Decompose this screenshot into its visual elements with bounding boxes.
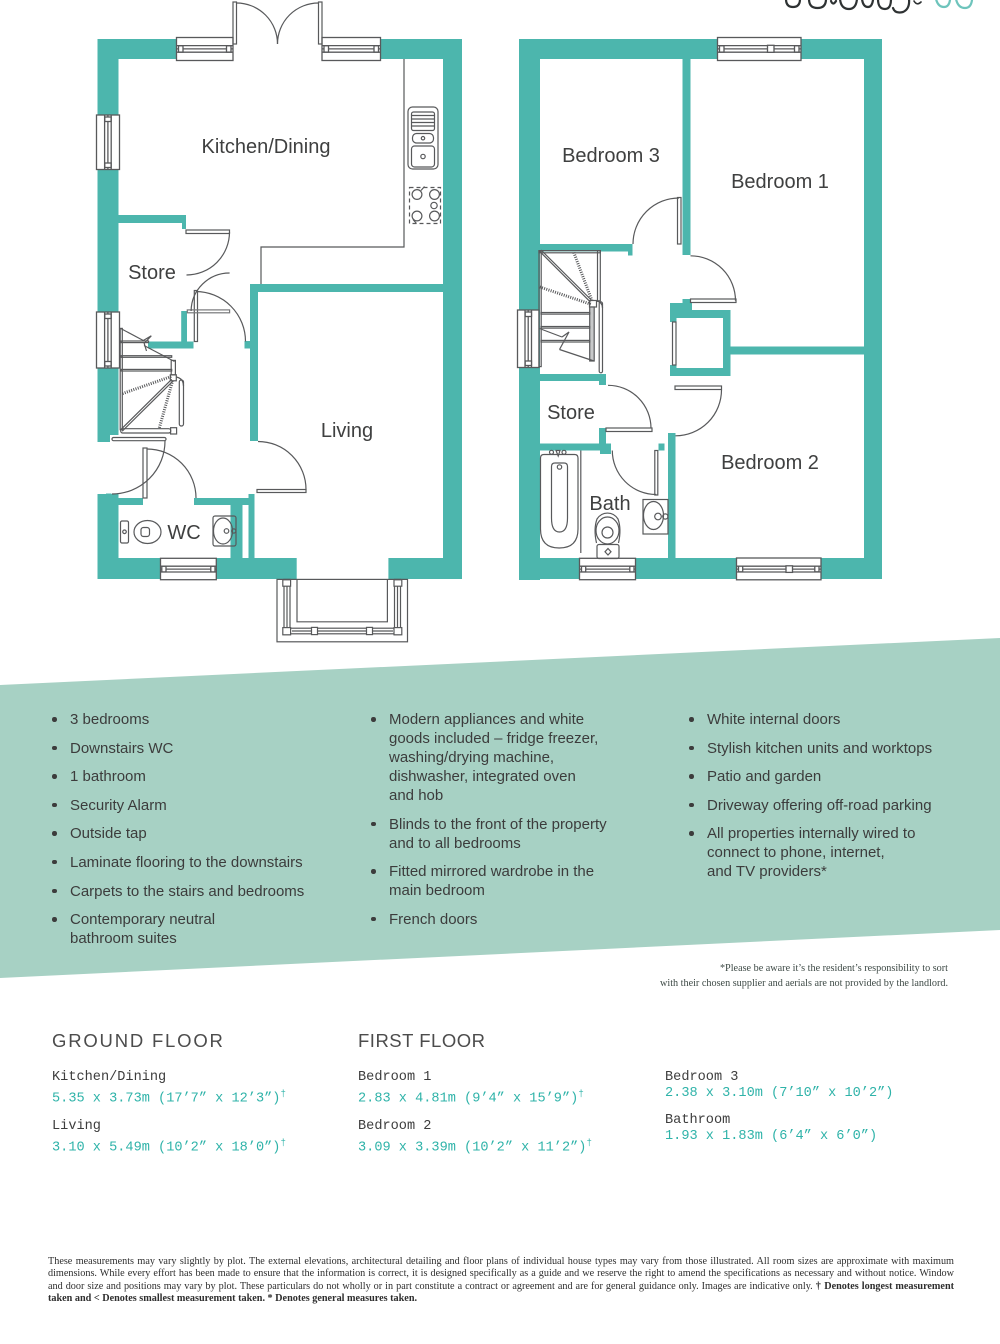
svg-text:Bath: Bath — [589, 493, 630, 515]
svg-text:Living: Living — [321, 420, 373, 442]
svg-text:Store: Store — [547, 402, 595, 424]
svg-text:Store: Store — [128, 262, 176, 284]
svg-text:Bedroom 2: Bedroom 2 — [721, 452, 819, 474]
svg-text:WC: WC — [167, 522, 200, 544]
svg-text:Bedroom 1: Bedroom 1 — [731, 171, 829, 193]
svg-text:Kitchen/Dining: Kitchen/Dining — [202, 136, 331, 158]
svg-text:Bedroom 3: Bedroom 3 — [562, 145, 660, 167]
